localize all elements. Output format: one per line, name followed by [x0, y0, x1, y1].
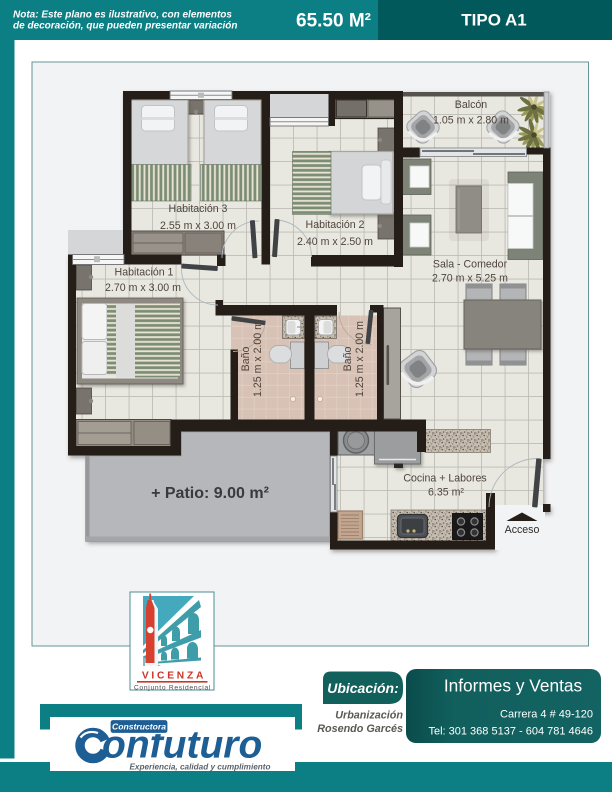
svg-text:Cocina + Labores: Cocina + Labores	[403, 473, 486, 485]
svg-text:Informes y Ventas: Informes y Ventas	[444, 676, 583, 696]
svg-text:1.25 m x 2.00 m: 1.25 m x 2.00 m	[252, 321, 264, 397]
svg-text:Habitación 2: Habitación 2	[306, 219, 365, 231]
svg-text:Constructora: Constructora	[112, 722, 166, 732]
svg-text:Baño: Baño	[342, 347, 354, 372]
svg-text:1.25 m x 2.00 m: 1.25 m x 2.00 m	[354, 321, 366, 397]
svg-text:2.55 m x 3.00 m: 2.55 m x 3.00 m	[160, 220, 236, 232]
svg-text:Baño: Baño	[240, 347, 252, 372]
svg-text:VICENZA: VICENZA	[142, 671, 206, 682]
svg-text:Balcón: Balcón	[455, 99, 487, 111]
svg-text:Conjunto Residencial: Conjunto Residencial	[134, 685, 211, 692]
svg-text:Habitación 1: Habitación 1	[115, 267, 174, 279]
svg-text:Carrera 4 # 49-120: Carrera 4 # 49-120	[500, 708, 593, 720]
svg-text:2.70 m x 5.25 m: 2.70 m x 5.25 m	[432, 273, 508, 285]
svg-text:Acceso: Acceso	[505, 524, 540, 536]
svg-text:2.70 m x 3.00 m: 2.70 m x 3.00 m	[105, 282, 181, 294]
svg-text:6.35 m²: 6.35 m²	[428, 487, 464, 499]
svg-text:Urbanización: Urbanización	[335, 709, 403, 721]
svg-text:+ Patio: 9.00 m²: + Patio: 9.00 m²	[151, 485, 269, 502]
svg-text:TIPO A1: TIPO A1	[461, 11, 527, 30]
svg-text:Experiencia, calidad y cumplim: Experiencia, calidad y cumplimiento	[129, 763, 270, 772]
svg-text:Habitación 3: Habitación 3	[169, 203, 228, 215]
svg-text:Sala - Comedor: Sala - Comedor	[433, 259, 508, 271]
svg-text:2.40 m x 2.50 m: 2.40 m x 2.50 m	[297, 236, 373, 248]
svg-text:Ubicación:: Ubicación:	[327, 680, 399, 696]
svg-text:1.05 m x 2.80 m: 1.05 m x 2.80 m	[433, 115, 509, 127]
svg-text:Nota: Este plano es ilustrativ: Nota: Este plano es ilustrativo, con ele…	[13, 10, 232, 21]
svg-text:Tel: 301 368 5137 - 604 781 46: Tel: 301 368 5137 - 604 781 4646	[428, 726, 593, 738]
svg-text:Rosendo Garcés: Rosendo Garcés	[317, 723, 403, 735]
svg-text:de decoración, que pueden pres: de decoración, que pueden presentar vari…	[13, 21, 238, 32]
svg-text:65.50 M²: 65.50 M²	[296, 11, 371, 32]
